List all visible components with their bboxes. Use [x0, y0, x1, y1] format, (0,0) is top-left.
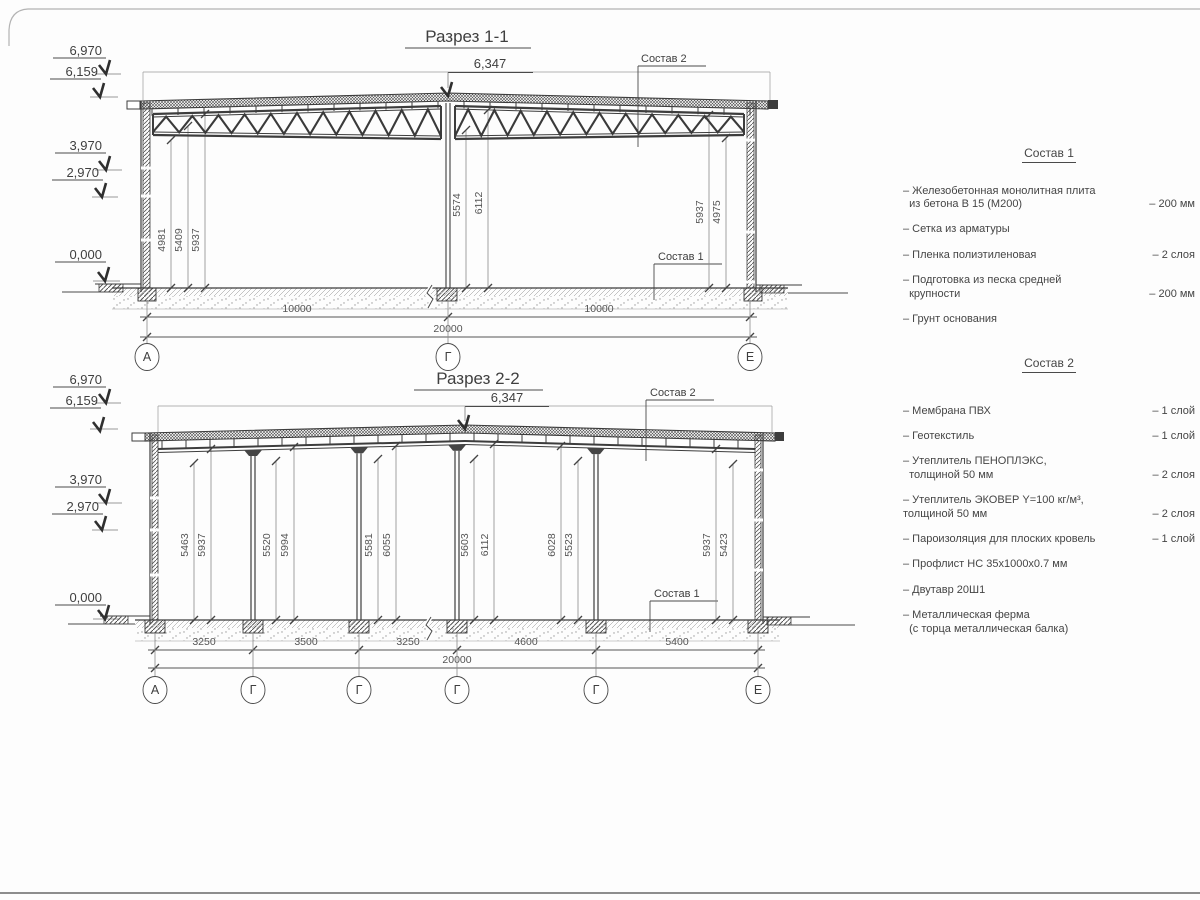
section2-sostav2-label: Состав 2: [650, 387, 696, 399]
sostav1-heading: Состав 1: [903, 146, 1195, 163]
item-text: – Железобетонная монолитная плита из бет…: [903, 185, 1096, 212]
section-1: Разрез 1-1 6,347 Состав 2 Состав 1 6,970…: [50, 27, 848, 371]
section1-axes: А Г Е: [135, 344, 762, 371]
elevation-label: 0,000: [69, 590, 102, 605]
dim-value: 5409: [173, 228, 185, 252]
section1-roof-slab: [127, 93, 778, 109]
section2-elevation-marks: 6,970 6,159 3,970 2,970 0,000: [50, 372, 122, 619]
elevation-label: 2,970: [66, 499, 99, 514]
section2-axes: А Г Г Г Г Е: [143, 677, 770, 704]
section2-sostav1-label: Состав 1: [654, 588, 700, 600]
dim-value: 4600: [514, 636, 538, 648]
elevation-label: 2,970: [66, 165, 99, 180]
list-item: – Утеплитель ПЕНОПЛЭКС, толщиной 50 мм– …: [903, 455, 1195, 482]
item-text: – Мембрана ПВХ: [903, 405, 991, 418]
item-value: – 2 слоя: [1147, 508, 1195, 521]
elevation-label: 6,159: [65, 393, 98, 408]
dim-value: 5994: [279, 533, 291, 557]
axis-label: Г: [445, 350, 452, 364]
elevation-label: 6,970: [69, 372, 102, 387]
elevation-label: 3,970: [69, 138, 102, 153]
dim-value: 6028: [546, 533, 558, 557]
drawing-sheet: Разрез 1-1 6,347 Состав 2 Состав 1 6,970…: [0, 0, 1200, 900]
dim-value: 3250: [192, 636, 216, 648]
axis-label: Г: [356, 683, 363, 697]
dim-value: 10000: [282, 303, 311, 315]
axis-label: А: [151, 683, 160, 697]
list-item: – Пленка полиэтиленовая– 2 слоя: [903, 249, 1195, 262]
section-2: Разрез 2-2 6,347 Состав 2 Состав 1 6,970…: [50, 369, 855, 704]
item-text: – Грунт основания: [903, 313, 997, 326]
item-text: – Пароизоляция для плоских кровель: [903, 533, 1095, 546]
item-value: – 1 слой: [1146, 533, 1195, 546]
list-item: – Металлическая ферма (с торца металличе…: [903, 609, 1195, 636]
dim-value: 3250: [396, 636, 420, 648]
dim-value: 5400: [665, 636, 689, 648]
dim-value: 5937: [701, 533, 713, 557]
item-text: – Утеплитель ЭКОВЕР Y=100 кг/м³, толщино…: [903, 494, 1084, 521]
section2-roof-slab: [132, 425, 784, 441]
dim-value: 5937: [190, 228, 202, 252]
section1-floor: [62, 284, 848, 309]
axis-label: Г: [250, 683, 257, 697]
sostav1-list: Состав 1 – Железобетонная монолитная пли…: [903, 146, 1195, 338]
dim-value: 4975: [711, 200, 723, 224]
section1-vertical-dims: 4981 5409 5937 5574 6112 5937 4975: [156, 192, 723, 252]
dim-value: 5581: [363, 533, 375, 557]
item-text: – Подготовка из песка средней крупности: [903, 274, 1061, 301]
list-item: – Двутавр 20Ш1: [903, 584, 1195, 597]
item-text: – Геотекстиль: [903, 430, 974, 443]
list-item: – Сетка из арматуры: [903, 223, 1195, 236]
section1-elevation-marks: 6,970 6,159 3,970 2,970 0,000: [50, 43, 122, 281]
list-item: – Подготовка из песка средней крупности–…: [903, 274, 1195, 301]
list-item: – Пароизоляция для плоских кровель– 1 сл…: [903, 533, 1195, 546]
item-value: – 200 мм: [1143, 288, 1195, 301]
sostav2-list: Состав 2 – Мембрана ПВХ– 1 слой – Геотек…: [903, 356, 1195, 648]
sostav2-heading: Состав 2: [903, 356, 1195, 373]
item-text: – Профлист НС 35х1000х0.7 мм: [903, 558, 1067, 571]
list-item: – Утеплитель ЭКОВЕР Y=100 кг/м³, толщино…: [903, 494, 1195, 521]
elevation-label: 3,970: [69, 472, 102, 487]
dim-value: 5937: [196, 533, 208, 557]
axis-label: Г: [454, 683, 461, 697]
dim-value: 5603: [459, 533, 471, 557]
dim-value: 6112: [479, 534, 491, 557]
dim-value: 4981: [156, 228, 168, 252]
item-value: – 1 слой: [1146, 405, 1195, 418]
list-item: – Геотекстиль– 1 слой: [903, 430, 1195, 443]
item-text: – Утеплитель ПЕНОПЛЭКС, толщиной 50 мм: [903, 455, 1047, 482]
axis-label: А: [143, 350, 152, 364]
elevation-label: 0,000: [69, 247, 102, 262]
axis-label: Е: [746, 350, 754, 364]
axis-label: Г: [593, 683, 600, 697]
item-text: – Сетка из арматуры: [903, 223, 1010, 236]
section1-title: Разрез 1-1: [425, 27, 508, 46]
section1-sostav2-label: Состав 2: [641, 53, 687, 65]
dim-value: 5937: [694, 200, 706, 224]
axis-label: Е: [754, 683, 762, 697]
list-item: – Железобетонная монолитная плита из бет…: [903, 185, 1195, 212]
item-value: – 200 мм: [1143, 198, 1195, 211]
item-value: – 2 слоя: [1147, 249, 1195, 262]
dim-value: 5523: [563, 533, 575, 557]
item-text: – Металлическая ферма (с торца металличе…: [903, 609, 1068, 636]
dim-value: 5520: [261, 533, 273, 557]
dim-value: 6112: [473, 192, 485, 215]
item-value: – 2 слоя: [1147, 469, 1195, 482]
elevation-label: 6,970: [69, 43, 102, 58]
list-item: – Грунт основания: [903, 313, 1195, 326]
list-item: – Мембрана ПВХ– 1 слой: [903, 405, 1195, 418]
elevation-label: 6,159: [65, 64, 98, 79]
dim-value: 6055: [381, 533, 393, 557]
dim-value: 5423: [718, 533, 730, 557]
dim-value: 3500: [294, 636, 318, 648]
dim-value: 10000: [584, 303, 613, 315]
section2-title: Разрез 2-2: [436, 369, 519, 388]
dim-value: 5574: [451, 193, 463, 217]
dim-value: 5463: [179, 533, 191, 557]
item-text: – Двутавр 20Ш1: [903, 584, 985, 597]
section1-ridge-elevation: 6,347: [474, 56, 507, 71]
item-text: – Пленка полиэтиленовая: [903, 249, 1036, 262]
section2-ridge-elevation: 6,347: [491, 390, 524, 405]
section1-sostav1-label: Состав 1: [658, 251, 704, 263]
section2-floor: [68, 616, 855, 641]
generated-linework: [93, 60, 765, 676]
list-item: – Профлист НС 35х1000х0.7 мм: [903, 558, 1195, 571]
item-value: – 1 слой: [1146, 430, 1195, 443]
